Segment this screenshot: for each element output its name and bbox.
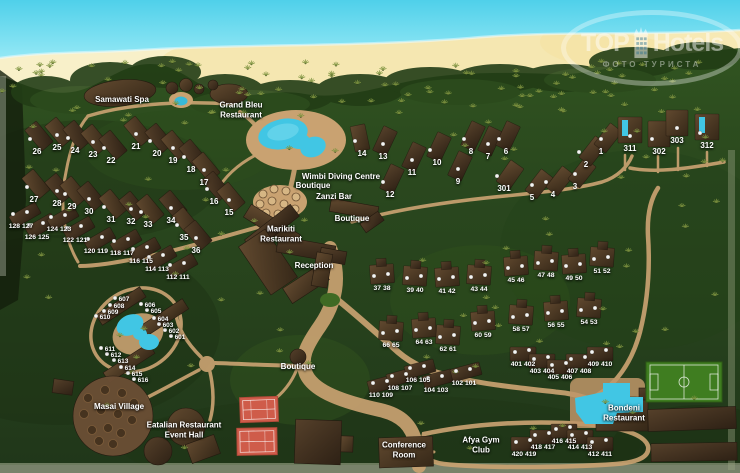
place-label-masai-village: Masai Village xyxy=(94,402,144,412)
place-label-zanzi-bar: Zanzi Bar xyxy=(316,192,352,202)
unit-label-30: 30 xyxy=(85,207,94,217)
watermark-bottom-text: Hotels xyxy=(653,31,723,56)
unit-label-32: 32 xyxy=(127,217,136,227)
unit-label-5: 5 xyxy=(530,193,534,203)
unit-label-302: 302 xyxy=(652,147,665,157)
watermark-brand: TOP Hotels xyxy=(581,27,723,59)
watermark-subtitle: ФОТО ТУРИСТА xyxy=(603,60,702,69)
unit-label-49-50: 49 50 xyxy=(565,275,582,283)
place-label-marikiti-restaurant: Marikiti Restaurant xyxy=(260,224,302,244)
unit-label-108-107: 108 107 xyxy=(388,385,413,393)
place-label-samawati-spa: Samawati Spa xyxy=(95,95,149,105)
unit-label-8: 8 xyxy=(469,147,473,157)
unit-label-13: 13 xyxy=(379,152,388,162)
unit-label-303: 303 xyxy=(670,136,683,146)
unit-label-47-48: 47 48 xyxy=(537,272,554,280)
unit-label-28: 28 xyxy=(53,199,62,209)
place-label-wimbi-boutique: Boutique xyxy=(296,181,331,191)
unit-label-312: 312 xyxy=(700,141,713,151)
unit-label-29: 29 xyxy=(68,202,77,212)
tophotels-watermark: TOP Hotels ФОТО ТУРИСТА xyxy=(561,10,740,86)
place-label-afya-gym-club: Afya Gym Club xyxy=(462,435,499,455)
unit-label-31: 31 xyxy=(107,215,116,225)
unit-label-412-411: 412 411 xyxy=(588,451,612,459)
watermark-top-text: TOP xyxy=(581,31,629,56)
unit-label-311: 311 xyxy=(624,144,637,154)
unit-label-51-52: 51 52 xyxy=(593,268,610,276)
place-label-boutique-central: Boutique xyxy=(335,214,370,224)
unit-label-41-42: 41 42 xyxy=(438,288,455,296)
unit-label-33: 33 xyxy=(144,220,153,230)
unit-label-124-123: 124 123 xyxy=(47,226,72,234)
unit-label-128-127: 128 127 xyxy=(9,223,34,231)
unit-label-15: 15 xyxy=(225,208,234,218)
unit-label-34: 34 xyxy=(167,216,176,226)
unit-label-20: 20 xyxy=(153,149,162,159)
unit-label-2: 2 xyxy=(584,160,588,170)
unit-label-36: 36 xyxy=(192,246,201,256)
unit-label-24: 24 xyxy=(71,146,80,156)
hotel-tower-icon xyxy=(631,27,651,59)
unit-label-17: 17 xyxy=(200,178,209,188)
unit-label-601: 601 xyxy=(175,334,186,342)
unit-label-10: 10 xyxy=(433,158,442,168)
unit-label-21: 21 xyxy=(132,142,141,152)
resort-map: Samawati SpaGrand Bleu RestaurantWimbi D… xyxy=(0,0,740,473)
place-label-eatalian-restaurant-event-hall: Eatalian Restaurant Event Hall xyxy=(147,420,222,440)
unit-label-25: 25 xyxy=(53,143,62,153)
unit-label-6: 6 xyxy=(504,147,508,157)
unit-label-62-61: 62 61 xyxy=(439,346,456,354)
unit-label-23: 23 xyxy=(89,150,98,160)
unit-label-39-40: 39 40 xyxy=(406,287,423,295)
unit-label-58-57: 58 57 xyxy=(512,326,529,334)
unit-label-1: 1 xyxy=(599,147,603,157)
unit-label-19: 19 xyxy=(169,156,178,166)
unit-label-64-63: 64 63 xyxy=(415,339,432,347)
unit-label-11: 11 xyxy=(408,168,416,178)
unit-label-7: 7 xyxy=(486,152,490,162)
place-label-bondeni-restaurant: Bondeni Restaurant xyxy=(603,403,645,423)
unit-label-301: 301 xyxy=(497,184,510,194)
unit-label-60-59: 60 59 xyxy=(474,332,491,340)
unit-label-126-125: 126 125 xyxy=(25,234,50,242)
unit-label-616: 616 xyxy=(138,377,149,385)
unit-label-104-103: 104 103 xyxy=(424,387,449,395)
unit-label-3: 3 xyxy=(573,182,577,192)
unit-label-27: 27 xyxy=(30,195,39,205)
unit-label-26: 26 xyxy=(33,147,42,157)
unit-label-54-53: 54 53 xyxy=(580,319,597,327)
unit-label-14: 14 xyxy=(358,149,367,159)
unit-label-56-55: 56 55 xyxy=(547,322,564,330)
unit-label-43-44: 43 44 xyxy=(470,286,487,294)
unit-label-409-410: 409 410 xyxy=(588,361,613,369)
place-label-boutique-south: Boutique xyxy=(281,362,316,372)
unit-label-610: 610 xyxy=(100,314,111,322)
place-label-reception: Reception xyxy=(295,261,334,271)
unit-label-605: 605 xyxy=(151,308,162,316)
unit-label-18: 18 xyxy=(187,165,196,175)
unit-label-106-105: 106 105 xyxy=(406,377,431,385)
unit-label-35: 35 xyxy=(180,233,189,243)
unit-label-102-101: 102 101 xyxy=(452,380,477,388)
unit-label-112-111: 112 111 xyxy=(166,274,189,282)
unit-label-122-121: 122 121 xyxy=(63,237,88,245)
unit-label-4: 4 xyxy=(551,190,555,200)
unit-label-22: 22 xyxy=(107,156,116,166)
unit-label-16: 16 xyxy=(210,197,219,207)
unit-label-120-119: 120 119 xyxy=(84,248,108,256)
unit-label-45-46: 45 46 xyxy=(507,277,524,285)
place-label-conference-room: Conference Room xyxy=(382,440,426,460)
unit-label-12: 12 xyxy=(386,190,395,200)
unit-label-9: 9 xyxy=(456,177,460,187)
place-label-grand-bleu-restaurant: Grand Bleu Restaurant xyxy=(219,100,262,120)
unit-label-37-38: 37 38 xyxy=(373,285,390,293)
unit-label-66-65: 66 65 xyxy=(382,342,399,350)
